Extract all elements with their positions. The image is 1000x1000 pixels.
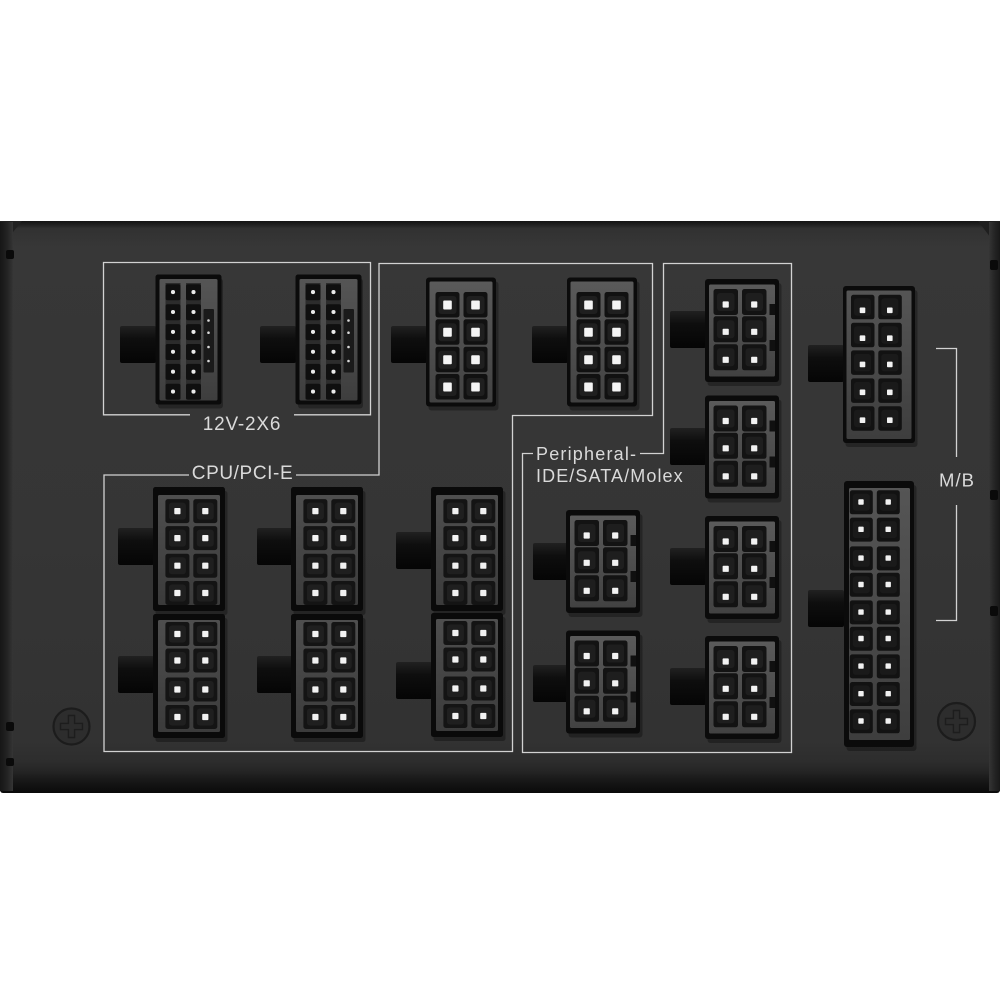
svg-text:CPU/PCI-E: CPU/PCI-E (192, 463, 293, 484)
svg-text:Peripheral-: Peripheral- (536, 444, 637, 464)
svg-text:M/B: M/B (939, 470, 975, 491)
svg-text:IDE/SATA/Molex: IDE/SATA/Molex (536, 466, 684, 486)
svg-text:12V-2X6: 12V-2X6 (203, 414, 282, 435)
